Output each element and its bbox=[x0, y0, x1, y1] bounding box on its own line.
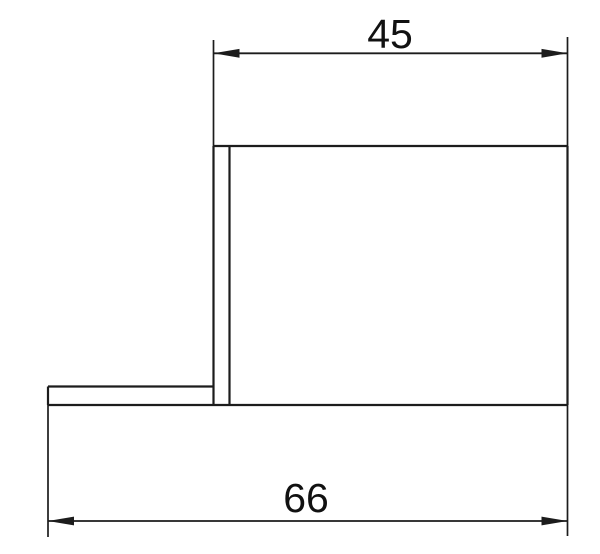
part-outline bbox=[48, 37, 568, 537]
arrowhead-right-icon bbox=[542, 517, 568, 526]
dimension-bottom: 66 bbox=[48, 475, 568, 525]
dimension-label-bottom: 66 bbox=[283, 475, 329, 521]
dimension-top: 45 bbox=[214, 11, 568, 58]
arrowhead-left-icon bbox=[48, 517, 74, 526]
arrowhead-right-icon bbox=[542, 49, 568, 58]
drawing-canvas: 45 66 bbox=[0, 0, 600, 554]
arrowhead-left-icon bbox=[214, 49, 240, 58]
dimension-label-top: 45 bbox=[367, 11, 413, 57]
technical-drawing: 45 66 bbox=[0, 0, 600, 554]
